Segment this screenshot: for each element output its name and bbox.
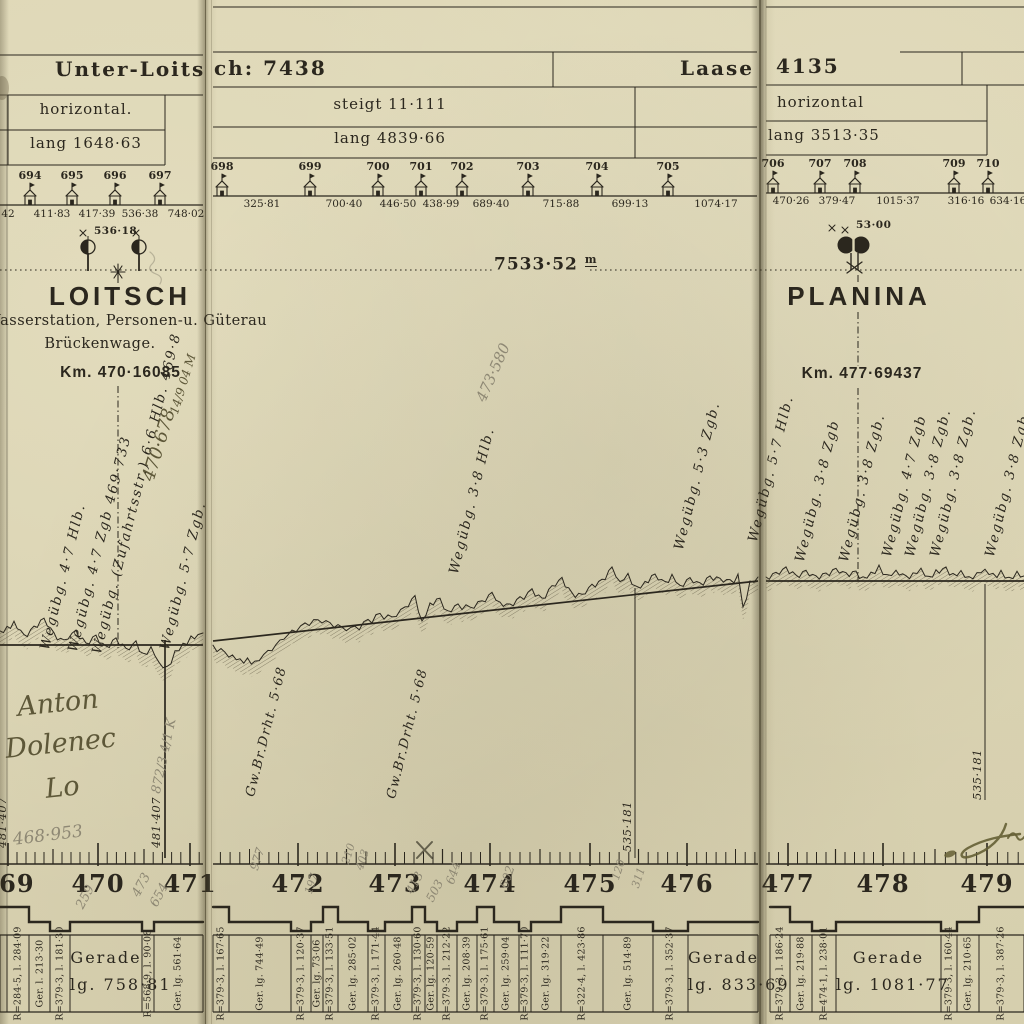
section-length-value: 7533·52	[494, 255, 578, 275]
curve-table-cell-text: R=379·3, l. 387·26	[996, 926, 1007, 1020]
km-label: 470	[64, 871, 132, 896]
curve-table-cell: R=379·3, l. 167·65	[213, 935, 229, 1012]
curve-table-cell: Ger. lg. 319·22	[531, 935, 561, 1012]
level-crossing-label: Wegübg. 5·7 Hlb.	[746, 394, 796, 544]
curve-table-cell-text: R=379·3, l. 171·44	[371, 926, 382, 1020]
curve-table-cell-straight: Gerade	[70, 950, 142, 967]
loitsch-signal-distance: 536·18	[94, 226, 137, 237]
curve-table-cell: R=379·3, l. 186·24	[770, 935, 790, 1012]
curve-table-cell: Ger. lg. 561·64	[154, 935, 203, 1012]
handwritten-ink-note: Dolenec	[4, 724, 117, 764]
curve-table-cell: R=474·1, l. 238·01	[812, 935, 836, 1012]
curve-table-cell: R=379·3, l. 181·30	[50, 935, 70, 1012]
curve-table-cell-straight: lg. 1081·77	[836, 977, 941, 994]
curve-table-cell: R=379·3, l. 171·44	[368, 935, 385, 1012]
curve-table-cell-text: R=379·3, l. 160·44	[944, 926, 955, 1020]
watch-house-number: 702	[447, 161, 477, 173]
km-label: 479	[953, 871, 1021, 896]
planina-km-value: Km. 477·69437	[786, 366, 938, 382]
km-label: 478	[849, 871, 917, 896]
curve-table-cell-text: Ger. lg. 285·02	[348, 936, 359, 1010]
length-row-middle: lang 4839·66	[305, 131, 475, 147]
watch-house-distance: 700·40	[316, 199, 372, 210]
curve-table-cell-text: Ger. lg. 120·59	[426, 936, 437, 1010]
watch-house-number: 697	[145, 170, 175, 182]
handwritten-pencil-note: 120	[610, 858, 627, 882]
watch-house-number: 698	[207, 161, 237, 173]
planina-signal-distance: 53·00	[856, 220, 891, 231]
watch-house-number: 706	[758, 158, 788, 170]
watch-house-number: 695	[57, 170, 87, 182]
watch-house-number: 694	[15, 170, 45, 182]
curve-table-cell-text: R=379·3, l. 130·60	[413, 926, 424, 1020]
curve-table-cell: Ger. lg. 744·49	[229, 935, 291, 1012]
curve-table-cell: R=379·3, l. 175·61	[477, 935, 494, 1012]
watch-house-number: 709	[939, 158, 969, 170]
watch-house-distance: 438·99	[413, 199, 469, 210]
loitsch-description-2: Brückenwage.	[25, 337, 175, 352]
watch-house-distance: 748·02	[158, 209, 214, 220]
curve-table-cell: R=379·3, l. 111·70	[519, 935, 531, 1012]
watch-house-distance: 689·40	[463, 199, 519, 210]
watch-house-distance: 699·13	[602, 199, 658, 210]
curve-table-cell-text: Ger. lg. 514·89	[623, 936, 634, 1010]
curve-table-cell-text: R=379·3, l. 167·65	[216, 926, 227, 1020]
level-crossing-label: Wegübg. 3·8 Zgb.	[983, 407, 1024, 559]
watch-house-number: 701	[406, 161, 436, 173]
header-title-continuation: ch: 7438	[214, 58, 327, 79]
watch-house-number: 700	[363, 161, 393, 173]
section-length: 7533·52 m	[494, 254, 597, 275]
curve-table-cell-text: Ger. lg. 260·48	[393, 936, 404, 1010]
watch-house-number: 699	[295, 161, 325, 173]
curve-table-cell-straight: lg. 833·69	[688, 977, 758, 994]
header-title-unter-loitsch: Unter-Loits	[55, 59, 197, 80]
curve-table-cell-text: Ger. lg. 561·64	[173, 936, 184, 1010]
chainage-mark: 535·181	[621, 801, 633, 852]
watch-house-number: 710	[973, 158, 1003, 170]
level-crossing-label: Wegübg. 5·7 Zgb.	[158, 500, 209, 652]
curve-table-cell: Ger. lg. 285·02	[338, 935, 368, 1012]
handwritten-pencil-note: 311	[630, 866, 647, 890]
curve-table-cell-text: Ger. lg. 73·06	[312, 940, 323, 1008]
chainage-mark: 535·181	[971, 749, 983, 800]
curve-table-cell-text: R=568·9, l. 90·08	[143, 929, 154, 1017]
watch-house-number: 696	[100, 170, 130, 182]
curve-table-cell: R=379·3, l. 352·37	[653, 935, 688, 1012]
handwritten-ink-note: Lo	[44, 772, 81, 804]
header-title-laase-number: 4135	[776, 56, 840, 77]
km-label: 472	[264, 871, 332, 896]
loitsch-description-1: Wasserstation, Personen-u. Güterau	[0, 314, 267, 329]
curve-table-cell-straight: lg. 758·81	[70, 977, 142, 994]
handwritten-pencil-note: 977	[248, 846, 267, 872]
curve-table-cell: Ger. lg. 208·39	[457, 935, 477, 1012]
curve-table-cell: Ger. lg. 259·04	[494, 935, 519, 1012]
curve-table-cell-text: R=322·4, l. 423·86	[577, 926, 588, 1020]
curve-table-cell: R=322·4, l. 423·86	[561, 935, 603, 1012]
bridge-label: Gw.Br.Drht. 5·68	[244, 665, 290, 798]
curve-table-cell-text: Ger. lg. 319·22	[541, 936, 552, 1010]
km-label: 477	[754, 871, 822, 896]
curve-table-cell: Ger. lg. 120·59	[425, 935, 437, 1012]
km-label: 469	[0, 871, 42, 896]
watch-house-distance: 325·81	[234, 199, 290, 210]
section-length-unit: m	[585, 253, 598, 267]
grade-row-middle: steigt 11·111	[305, 97, 475, 113]
curve-table-cell-text: Ger. lg. 744·49	[255, 936, 266, 1010]
curve-table-cell: Ger. lg. 514·89	[603, 935, 653, 1012]
handwritten-pencil-note: 473·580	[474, 341, 514, 404]
watch-house-distance: 1015·37	[870, 196, 926, 207]
handwritten-pencil-note: 468·953	[12, 823, 84, 849]
level-crossing-label: Wegübg. 3·8 Zgb.	[837, 412, 888, 564]
curve-table-cell: R=379·3, l. 130·60	[412, 935, 425, 1012]
curve-table-cell: R=379·3, l. 387·26	[979, 935, 1024, 1012]
curve-table-cell-text: R=379·3, l. 181·30	[55, 926, 66, 1020]
curve-table-cell-text: Ger. lg. 210·65	[963, 936, 974, 1010]
curve-table-cell-text: R=379·3, l. 175·61	[480, 926, 491, 1020]
length-row-left: lang 1648·63	[10, 136, 162, 152]
curve-table-cell-text: R=474·1, l. 238·01	[819, 926, 830, 1020]
level-crossing-label: Wegübg. 3·8 Hlb.	[447, 426, 497, 576]
handwritten-ink-note: Anton	[16, 685, 100, 722]
curve-table-cell-text: R=379·3, l. 352·37	[665, 926, 676, 1020]
station-name-planina: PLANINA	[778, 283, 940, 310]
watch-house-distance: 1074·17	[688, 199, 744, 210]
level-crossing-label: Wegübg. 3·8 Zgb	[793, 418, 842, 563]
chainage-mark: 481·407	[0, 797, 8, 848]
curve-table-cell-text: R=379·3, l. 186·24	[775, 926, 786, 1020]
curve-table-cell: Ger. lg. 73·06	[311, 935, 323, 1012]
watch-house-number: 708	[840, 158, 870, 170]
curve-table-cell-text: Ger. lg. 219·88	[796, 936, 807, 1010]
curve-table-cell: R=379·3, l. 120·37	[291, 935, 311, 1012]
curve-table-cell: Ger. lg. 210·65	[957, 935, 979, 1012]
watch-house-number: 707	[805, 158, 835, 170]
railway-profile-scan: Unter-Loits ch: 7438 Laase 4135 horizont…	[0, 0, 1024, 1024]
curve-table-cell: R=379·3, l. 212·22	[437, 935, 457, 1012]
bridge-label: Gw.Br.Drht. 5·68	[385, 667, 431, 800]
curve-table-cell-text: Ger. l. 213·30	[34, 940, 45, 1008]
curve-table-cell: R=379·3, l. 160·44	[941, 935, 957, 1012]
curve-table-cell-text: R=379·3, l. 120·37	[296, 926, 307, 1020]
text-layer: Unter-Loits ch: 7438 Laase 4135 horizont…	[0, 0, 1024, 1024]
level-crossing-label: Wegübg. 5·3 Zgb.	[672, 400, 723, 552]
curve-table-cell: R=379·3, l. 133·51	[323, 935, 338, 1012]
curve-table-cell-text: Ger. lg. 259·04	[501, 936, 512, 1010]
curve-table-cell-straight: Gerade	[688, 950, 758, 967]
curve-table-cell-text: Ger. lg. 208·39	[462, 936, 473, 1010]
watch-house-number: 705	[653, 161, 683, 173]
curve-table-cell: R=284·5, l. 284·09	[7, 935, 29, 1012]
curve-table-cell-text: R=284·5, l. 284·09	[13, 926, 24, 1020]
watch-house-distance: 379·47	[809, 196, 865, 207]
curve-table-cell-text: R=379·3, l. 133·51	[325, 926, 336, 1020]
curve-table-cell-text: R=379·3, l. 212·22	[442, 926, 453, 1020]
watch-house-distance: 634·16	[980, 196, 1024, 207]
chainage-mark: 481·407	[150, 797, 162, 848]
curve-table-cell: R=568·9, l. 90·08	[142, 935, 154, 1012]
watch-house-number: 703	[513, 161, 543, 173]
curve-table-cell-text: R=379·3, l. 111·70	[520, 926, 531, 1020]
length-row-right: lang 3513·35	[768, 128, 880, 144]
station-name-loitsch: LOITSCH	[40, 283, 200, 310]
km-label: 476	[653, 871, 721, 896]
watch-house-distance: 715·88	[533, 199, 589, 210]
curve-table-cell: Ger. lg. 219·88	[790, 935, 812, 1012]
header-title-laase: Laase	[652, 58, 754, 79]
handwritten-pencil-note: 872/3 4/1 K	[150, 717, 179, 795]
watch-house-number: 704	[582, 161, 612, 173]
grade-row-right: horizontal	[777, 95, 864, 111]
curve-table-cell-straight: Gerade	[836, 950, 941, 967]
grade-row-left: horizontal.	[10, 102, 162, 118]
curve-table-cell: Ger. lg. 260·48	[385, 935, 412, 1012]
curve-table-cell: Ger. l. 213·30	[29, 935, 50, 1012]
